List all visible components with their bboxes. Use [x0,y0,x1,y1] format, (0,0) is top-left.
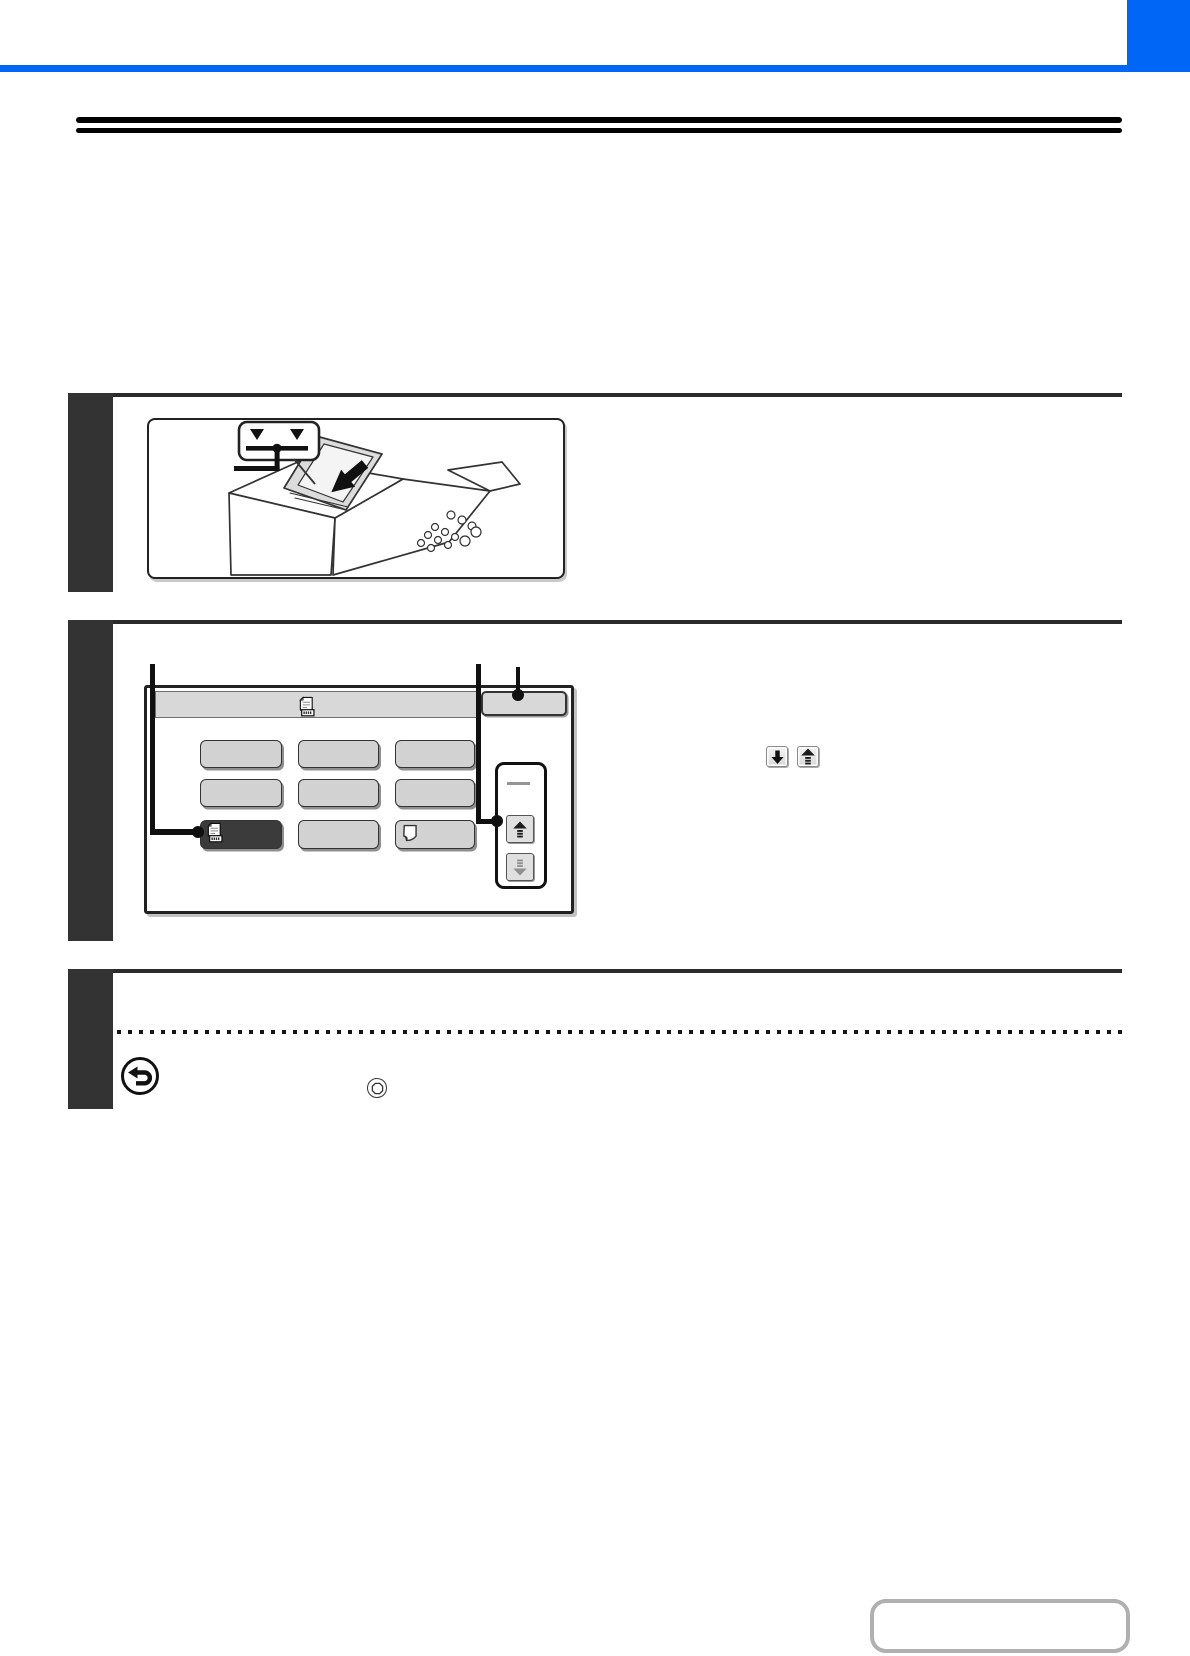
step-3-separator [68,969,1122,973]
screen-key-r1c2 [298,740,379,768]
step-1-number-block [68,393,113,592]
screen-header-bar [155,691,477,718]
screen-key-r3c3 [395,820,475,849]
up-arrow-key-icon [797,746,819,767]
step-1-separator [68,393,1122,397]
screen-key-r3c1 [200,820,282,849]
screen-key-r1c3 [395,740,475,768]
manual-page [0,0,1190,1656]
callout-dot [192,826,204,838]
title-double-rule-top [76,117,1122,123]
screen-key-r2c1 [200,779,282,807]
header-accent-bar [0,65,1190,72]
scroll-up-key [506,815,534,843]
callout-line-selected-key [150,664,155,833]
screen-key-r3c2 [298,820,379,849]
return-arrow-icon [121,1057,159,1095]
document-number-icon [296,696,317,719]
stop-key-icon [367,1078,387,1098]
step-1-figure [147,418,565,579]
step-3-number-block [68,969,113,1109]
screen-key-r1c1 [200,740,282,768]
note-dotted-divider [117,1030,1128,1034]
document-number-icon [204,822,225,850]
callout-dot [491,815,503,827]
screen-scroll-panel [495,762,547,889]
touch-panel-screen [144,685,574,914]
screen-header-button [481,691,567,716]
header-corner-block [1127,0,1190,72]
screen-key-r2c2 [298,779,379,807]
callout-line-selected-key [150,829,197,836]
scroll-position-dash [507,782,530,785]
step-2-separator [68,620,1122,624]
title-double-rule-bottom [76,128,1122,134]
footer-nav-button[interactable] [870,1599,1130,1653]
callout-dot [512,689,524,701]
adf-loading-illustration [149,420,562,576]
page-curl-icon [399,822,420,849]
scroll-down-key [506,853,534,881]
down-arrow-key-icon [766,746,788,767]
step-2-number-block [68,620,113,941]
screen-key-r2c3 [395,779,475,807]
callout-line-scroll-key [476,664,481,822]
